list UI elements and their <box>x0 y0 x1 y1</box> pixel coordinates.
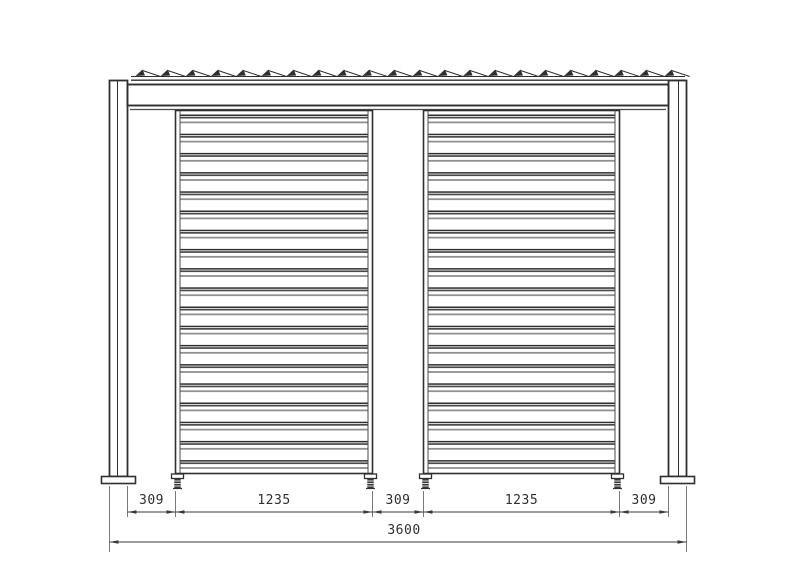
louver-slat <box>181 191 368 193</box>
roof-clip-blade <box>470 71 488 77</box>
louver-slat <box>181 462 368 464</box>
louver-slat <box>181 179 368 181</box>
louver-slat <box>181 309 368 311</box>
louver-slat <box>181 345 368 347</box>
dimension-arrowhead <box>660 510 669 514</box>
louver-slat <box>181 136 368 138</box>
louver-slat <box>181 174 368 176</box>
louver-slat <box>429 268 615 270</box>
louver-slat <box>181 443 368 445</box>
dimension-arrowhead <box>176 510 185 514</box>
louver-slat <box>429 366 615 368</box>
roof-clip-blade <box>218 71 236 77</box>
roof-clip-blade <box>521 71 539 77</box>
louver-slat <box>429 441 615 443</box>
dim-label-right-panel-width: 1235 <box>505 494 538 507</box>
louver-slat <box>181 333 368 335</box>
louver-slat <box>429 218 615 220</box>
foot-cap <box>420 474 432 479</box>
louvered-panels <box>176 111 620 474</box>
dim-label-left-panel-width: 1235 <box>257 494 290 507</box>
louver-slat <box>429 429 615 431</box>
roof-louver-rail <box>131 77 685 81</box>
louver-slat <box>181 448 368 450</box>
louver-slat <box>429 232 615 234</box>
louver-slat <box>429 422 615 424</box>
louver-slat <box>181 326 368 328</box>
louver-slat <box>429 117 615 119</box>
louver-slat <box>429 364 615 366</box>
louver-slat <box>429 115 615 117</box>
louver-slat <box>181 115 368 117</box>
roof-clip-blade <box>546 71 564 77</box>
louver-slat <box>429 237 615 239</box>
roof-clip-blade <box>395 71 413 77</box>
dim-label-center-gap: 309 <box>386 494 411 507</box>
top-beam <box>128 85 669 110</box>
louver-slat <box>181 287 368 289</box>
louver-slat <box>429 122 615 124</box>
leveling-foot <box>365 474 377 489</box>
louver-slat <box>181 134 368 136</box>
right-post <box>669 81 687 477</box>
louver-slat <box>429 160 615 162</box>
roof-clip-blade <box>168 71 186 77</box>
louver-slat <box>181 383 368 385</box>
dimension-arrowhead <box>167 510 176 514</box>
panel-frame <box>176 111 373 474</box>
louver-slat <box>181 410 368 412</box>
louver-slat <box>181 249 368 251</box>
louver-slat <box>181 467 368 469</box>
louver-slat <box>429 191 615 193</box>
louver-slat <box>429 290 615 292</box>
louver-slat <box>429 275 615 277</box>
louver-slat <box>181 198 368 200</box>
leveling-foot <box>612 474 624 489</box>
louver-slat <box>181 429 368 431</box>
roof-clip-blade <box>571 71 589 77</box>
dimension-arrowhead <box>620 510 629 514</box>
louver-slat <box>429 249 615 251</box>
louver-slat <box>429 383 615 385</box>
louver-slat <box>429 134 615 136</box>
dimension-arrowhead <box>373 510 382 514</box>
louver-slat <box>429 460 615 462</box>
leveling-foot <box>420 474 432 489</box>
roof-clip-blade <box>621 71 639 77</box>
louver-slat <box>429 309 615 311</box>
louver-slat <box>181 403 368 405</box>
roof-clip-blade <box>445 71 463 77</box>
roof-louver-clips <box>136 70 690 77</box>
louver-slat <box>429 403 615 405</box>
louver-slat <box>429 251 615 253</box>
louver-slat <box>429 326 615 328</box>
louver-slat <box>181 294 368 296</box>
louver-slat <box>181 218 368 220</box>
louver-slat <box>429 345 615 347</box>
roof-clip-blade <box>420 71 438 77</box>
louver-slat <box>429 333 615 335</box>
louver-slat <box>429 136 615 138</box>
louver-slat <box>181 160 368 162</box>
dimension-arrowhead <box>611 510 620 514</box>
louver-slat <box>429 352 615 354</box>
roof-clip-blade <box>193 71 211 77</box>
louver-slat <box>429 179 615 181</box>
louver-slat <box>181 422 368 424</box>
louver-slat <box>429 371 615 373</box>
louver-slat <box>429 294 615 296</box>
foot-cap <box>172 474 184 479</box>
louver-slat <box>429 328 615 330</box>
louver-slat <box>429 153 615 155</box>
louver-slat <box>429 307 615 309</box>
louver-slat <box>429 141 615 143</box>
louver-slat <box>181 122 368 124</box>
louver-slat <box>429 194 615 196</box>
louver-slat <box>181 307 368 309</box>
roof-clip-blade <box>269 71 287 77</box>
louver-slat <box>181 155 368 157</box>
louver-slat <box>429 443 615 445</box>
louver-slat <box>181 371 368 373</box>
dimension-arrowhead <box>678 540 687 544</box>
left-post <box>110 81 128 477</box>
louver-slat <box>429 467 615 469</box>
louver-slat <box>181 117 368 119</box>
roof-clip-blade <box>369 71 387 77</box>
louver-slat <box>429 390 615 392</box>
louver-slat <box>429 410 615 412</box>
louver-slat <box>181 256 368 258</box>
louver-slat <box>181 460 368 462</box>
roof-clip-blade <box>243 71 261 77</box>
louver-slat <box>429 347 615 349</box>
louver-slat <box>181 347 368 349</box>
louver-slat <box>429 256 615 258</box>
louver-slat <box>429 172 615 174</box>
right-post-base-plate <box>661 477 695 484</box>
dimension-arrowhead <box>424 510 433 514</box>
louver-slat <box>181 172 368 174</box>
drawing-geometry <box>0 0 800 565</box>
louver-slat <box>429 213 615 215</box>
louver-slat <box>181 405 368 407</box>
louver-slat <box>181 390 368 392</box>
louver-slat <box>429 230 615 232</box>
dim-label-overall-width: 3600 <box>387 524 420 537</box>
louver-slat <box>181 290 368 292</box>
dimension-arrowhead <box>415 510 424 514</box>
louver-slat <box>181 328 368 330</box>
louver-slat <box>429 405 615 407</box>
louver-slat <box>429 386 615 388</box>
dimension-arrowhead <box>128 510 137 514</box>
louver-slat <box>181 441 368 443</box>
roof-clip-blade <box>672 71 690 77</box>
roof-clip-blade <box>143 71 161 77</box>
roof-clip-blade <box>319 71 337 77</box>
louver-slat <box>429 211 615 213</box>
louver-slat <box>181 352 368 354</box>
left-post-base-plate <box>102 477 136 484</box>
panel-leveling-feet <box>172 474 624 489</box>
louver-slat <box>181 213 368 215</box>
louver-slat <box>181 237 368 239</box>
dimension-arrowhead <box>364 510 373 514</box>
roof-clip-blade <box>294 71 312 77</box>
foot-cap <box>365 474 377 479</box>
louver-slat <box>181 314 368 316</box>
dim-label-left-offset: 309 <box>139 494 164 507</box>
louver-slat <box>429 198 615 200</box>
louver-slat <box>429 287 615 289</box>
louver-slat <box>429 424 615 426</box>
louver-slat <box>181 364 368 366</box>
foot-cap <box>612 474 624 479</box>
louver-slat <box>181 194 368 196</box>
louver-slat <box>181 251 368 253</box>
louver-slat <box>181 275 368 277</box>
roof-clip-blade <box>495 71 513 77</box>
right-louvered-panel <box>424 111 620 474</box>
louver-slat <box>429 270 615 272</box>
louver-slat <box>181 386 368 388</box>
louver-slat <box>181 366 368 368</box>
pergola-elevation-drawing: 309 1235 309 1235 309 3600 <box>0 0 800 565</box>
louver-slat <box>181 141 368 143</box>
louver-slat <box>429 314 615 316</box>
leveling-foot <box>172 474 184 489</box>
louver-slat <box>181 424 368 426</box>
roof-clip-blade <box>596 71 614 77</box>
louver-slat <box>429 462 615 464</box>
dimension-arrowhead <box>110 540 119 544</box>
louver-slat <box>181 232 368 234</box>
louver-slat <box>429 155 615 157</box>
louver-slat <box>181 230 368 232</box>
left-louvered-panel <box>176 111 373 474</box>
louver-slat <box>181 270 368 272</box>
panel-frame <box>424 111 620 474</box>
louver-slat <box>181 268 368 270</box>
louver-slat <box>429 448 615 450</box>
roof-clip-blade <box>344 71 362 77</box>
louver-slat <box>429 174 615 176</box>
louver-slat <box>181 211 368 213</box>
dim-label-right-offset: 309 <box>632 494 657 507</box>
louver-slat <box>181 153 368 155</box>
roof-clip-blade <box>647 71 665 77</box>
